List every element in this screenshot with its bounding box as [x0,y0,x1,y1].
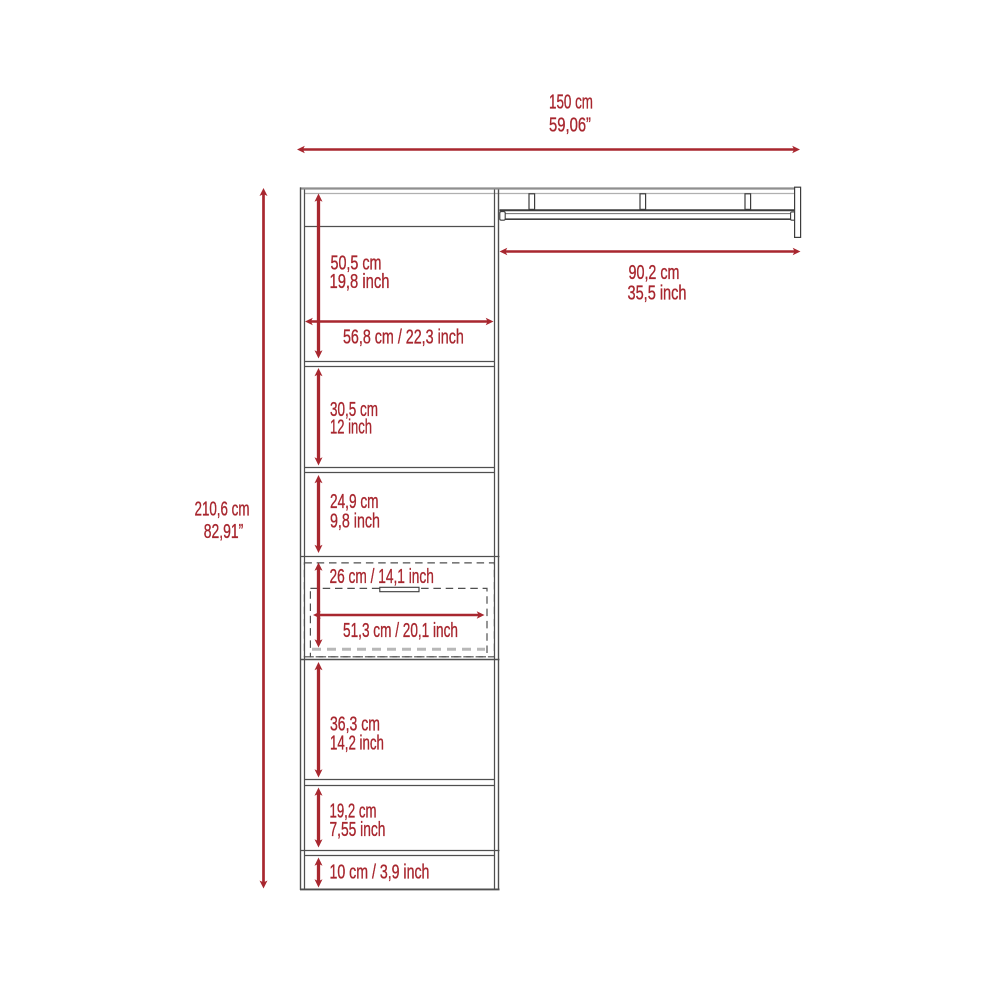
svg-text:7,55 inch: 7,55 inch [330,817,386,840]
svg-text:56,8 cm / 22,3 inch: 56,8 cm / 22,3 inch [343,325,464,348]
svg-text:51,3 cm / 20,1 inch: 51,3 cm / 20,1 inch [343,619,458,641]
svg-text:90,2 cm: 90,2 cm [629,261,680,284]
svg-text:10 cm / 3,9 inch: 10 cm / 3,9 inch [330,860,430,883]
svg-text:150 cm: 150 cm [549,91,593,113]
svg-text:26 cm / 14,1 inch: 26 cm / 14,1 inch [330,564,434,587]
svg-text:9,8 inch: 9,8 inch [330,509,380,532]
svg-text:59,06”: 59,06” [549,113,591,136]
svg-text:210,6 cm: 210,6 cm [195,498,250,520]
svg-text:14,2 inch: 14,2 inch [330,732,384,754]
svg-text:19,8 inch: 19,8 inch [330,270,390,293]
svg-text:82,91”: 82,91” [204,519,244,542]
svg-text:12 inch: 12 inch [330,416,372,439]
svg-text:35,5 inch: 35,5 inch [628,281,687,304]
